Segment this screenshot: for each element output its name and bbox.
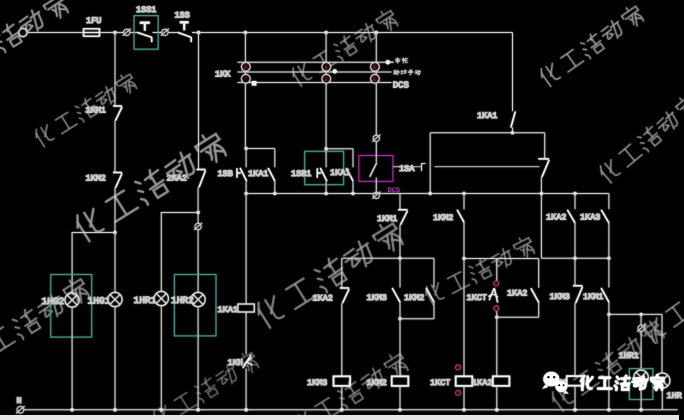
svg-text:1KM1: 1KM1 [583, 292, 603, 302]
svg-text:2KA2: 2KA2 [167, 174, 187, 184]
svg-text:1SB: 1SB [218, 169, 233, 179]
svg-text:1HR: 1HR [667, 391, 682, 401]
svg-text:1KA2: 1KA2 [472, 378, 492, 388]
svg-text:1SS1: 1SS1 [136, 5, 156, 15]
svg-text:1KM2: 1KM2 [86, 174, 106, 184]
svg-text:1KM3: 1KM3 [367, 293, 387, 303]
svg-text:1HR2: 1HR2 [171, 295, 194, 306]
svg-text:1KA1: 1KA1 [218, 305, 238, 315]
svg-text:1KA2: 1KA2 [507, 289, 527, 299]
svg-text:1KA1: 1KA1 [248, 169, 268, 179]
svg-text:1KM2: 1KM2 [404, 293, 424, 303]
svg-text:1KCT: 1KCT [467, 293, 487, 303]
svg-text:1KM1: 1KM1 [377, 214, 397, 224]
svg-text:DCS: DCS [393, 81, 409, 91]
svg-text:1KA1: 1KA1 [477, 111, 497, 121]
svg-text:1HG2: 1HG2 [42, 296, 65, 307]
svg-text:1KA3: 1KA3 [580, 213, 600, 223]
svg-text:1HG1: 1HG1 [88, 296, 111, 307]
svg-text:1HR1: 1HR1 [619, 351, 639, 361]
svg-text:1KA2: 1KA2 [313, 294, 333, 304]
svg-text:1KM3: 1KM3 [307, 378, 327, 388]
svg-text:1KA1: 1KA1 [330, 168, 350, 178]
svg-text:1KM2: 1KM2 [367, 378, 387, 388]
svg-text:1KM1: 1KM1 [86, 106, 106, 116]
svg-text:1KA2: 1KA2 [546, 213, 566, 223]
svg-text:1KK: 1KK [215, 70, 231, 80]
svg-text:1KCT: 1KCT [430, 378, 450, 388]
svg-text:1FU: 1FU [86, 16, 101, 26]
svg-text:1HR1: 1HR1 [134, 295, 157, 306]
svg-text:1KM2: 1KM2 [433, 213, 453, 223]
svg-text:1SB1: 1SB1 [291, 169, 311, 179]
svg-text:1SS: 1SS [175, 11, 190, 21]
svg-text:1KH: 1KH [228, 358, 243, 368]
svg-text:1SA: 1SA [399, 164, 415, 174]
svg-text:N: N [17, 396, 22, 406]
svg-text:1KM3: 1KM3 [550, 292, 570, 302]
